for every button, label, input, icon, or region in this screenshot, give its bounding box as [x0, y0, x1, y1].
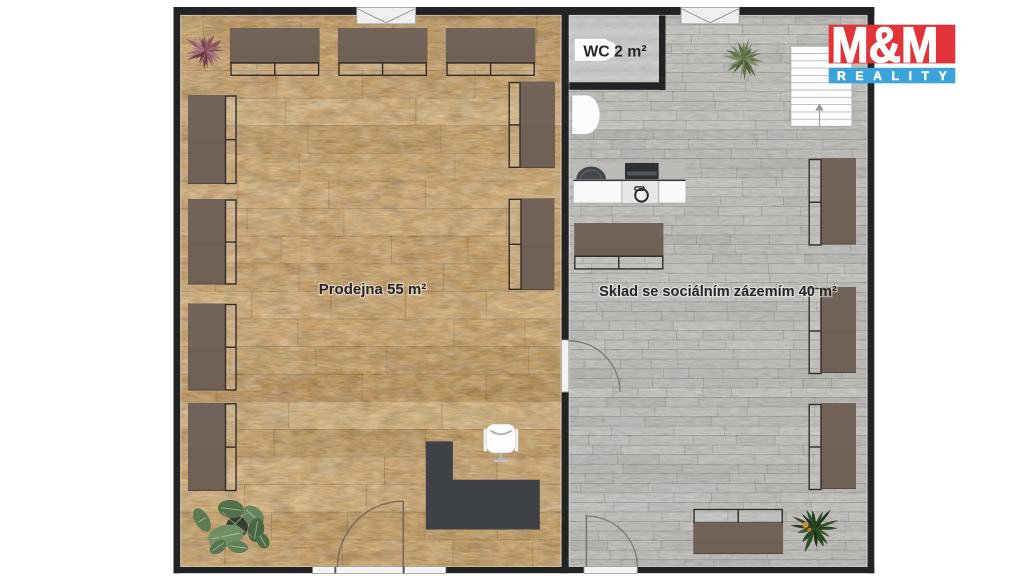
svg-text:WC 2 m²: WC 2 m²	[583, 44, 646, 61]
svg-text:Sklad se sociálním zázemím 40: Sklad se sociálním zázemím 40 m²	[599, 284, 837, 300]
svg-text:Prodejna 55 m²: Prodejna 55 m²	[319, 281, 427, 298]
svg-text:REALITY: REALITY	[837, 69, 956, 83]
svg-text:M&M: M&M	[831, 17, 938, 73]
